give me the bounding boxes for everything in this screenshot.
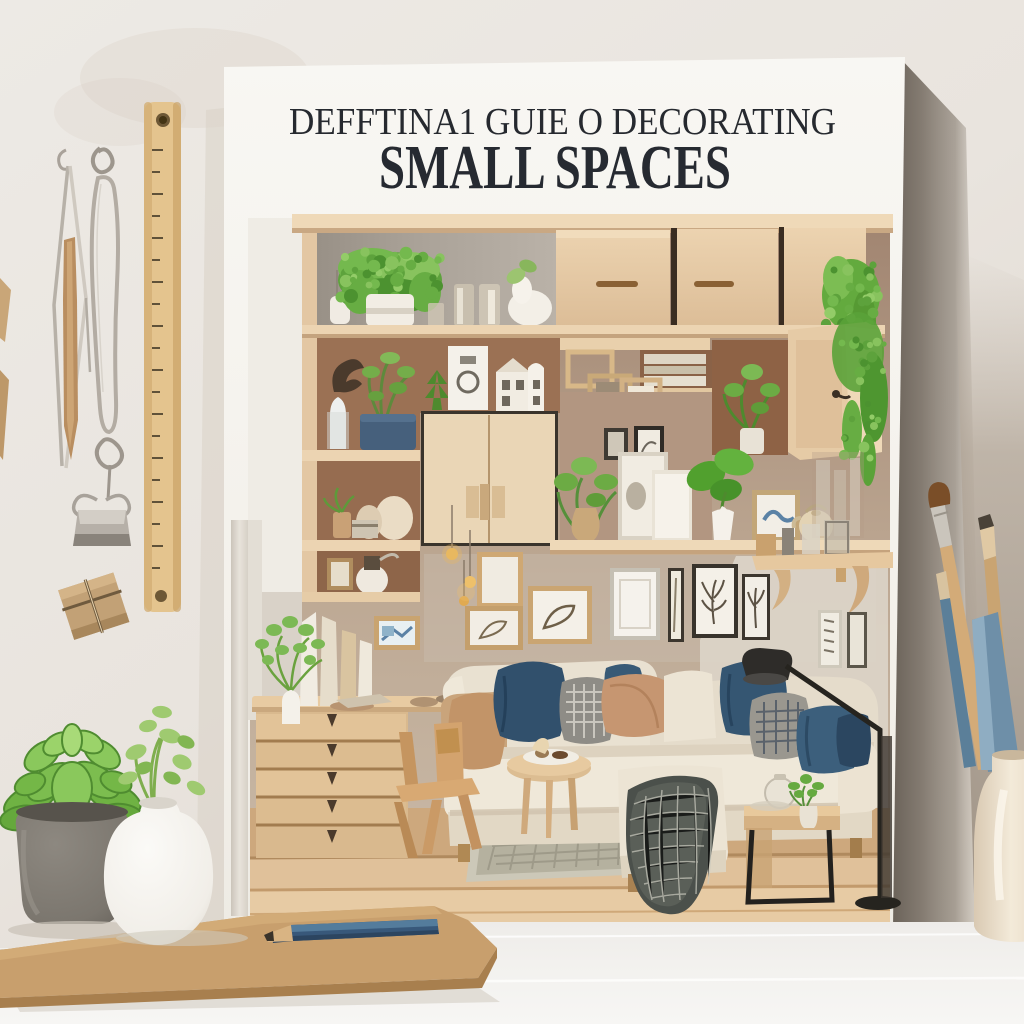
svg-text:SMALL SPACES: SMALL SPACES xyxy=(379,134,731,202)
